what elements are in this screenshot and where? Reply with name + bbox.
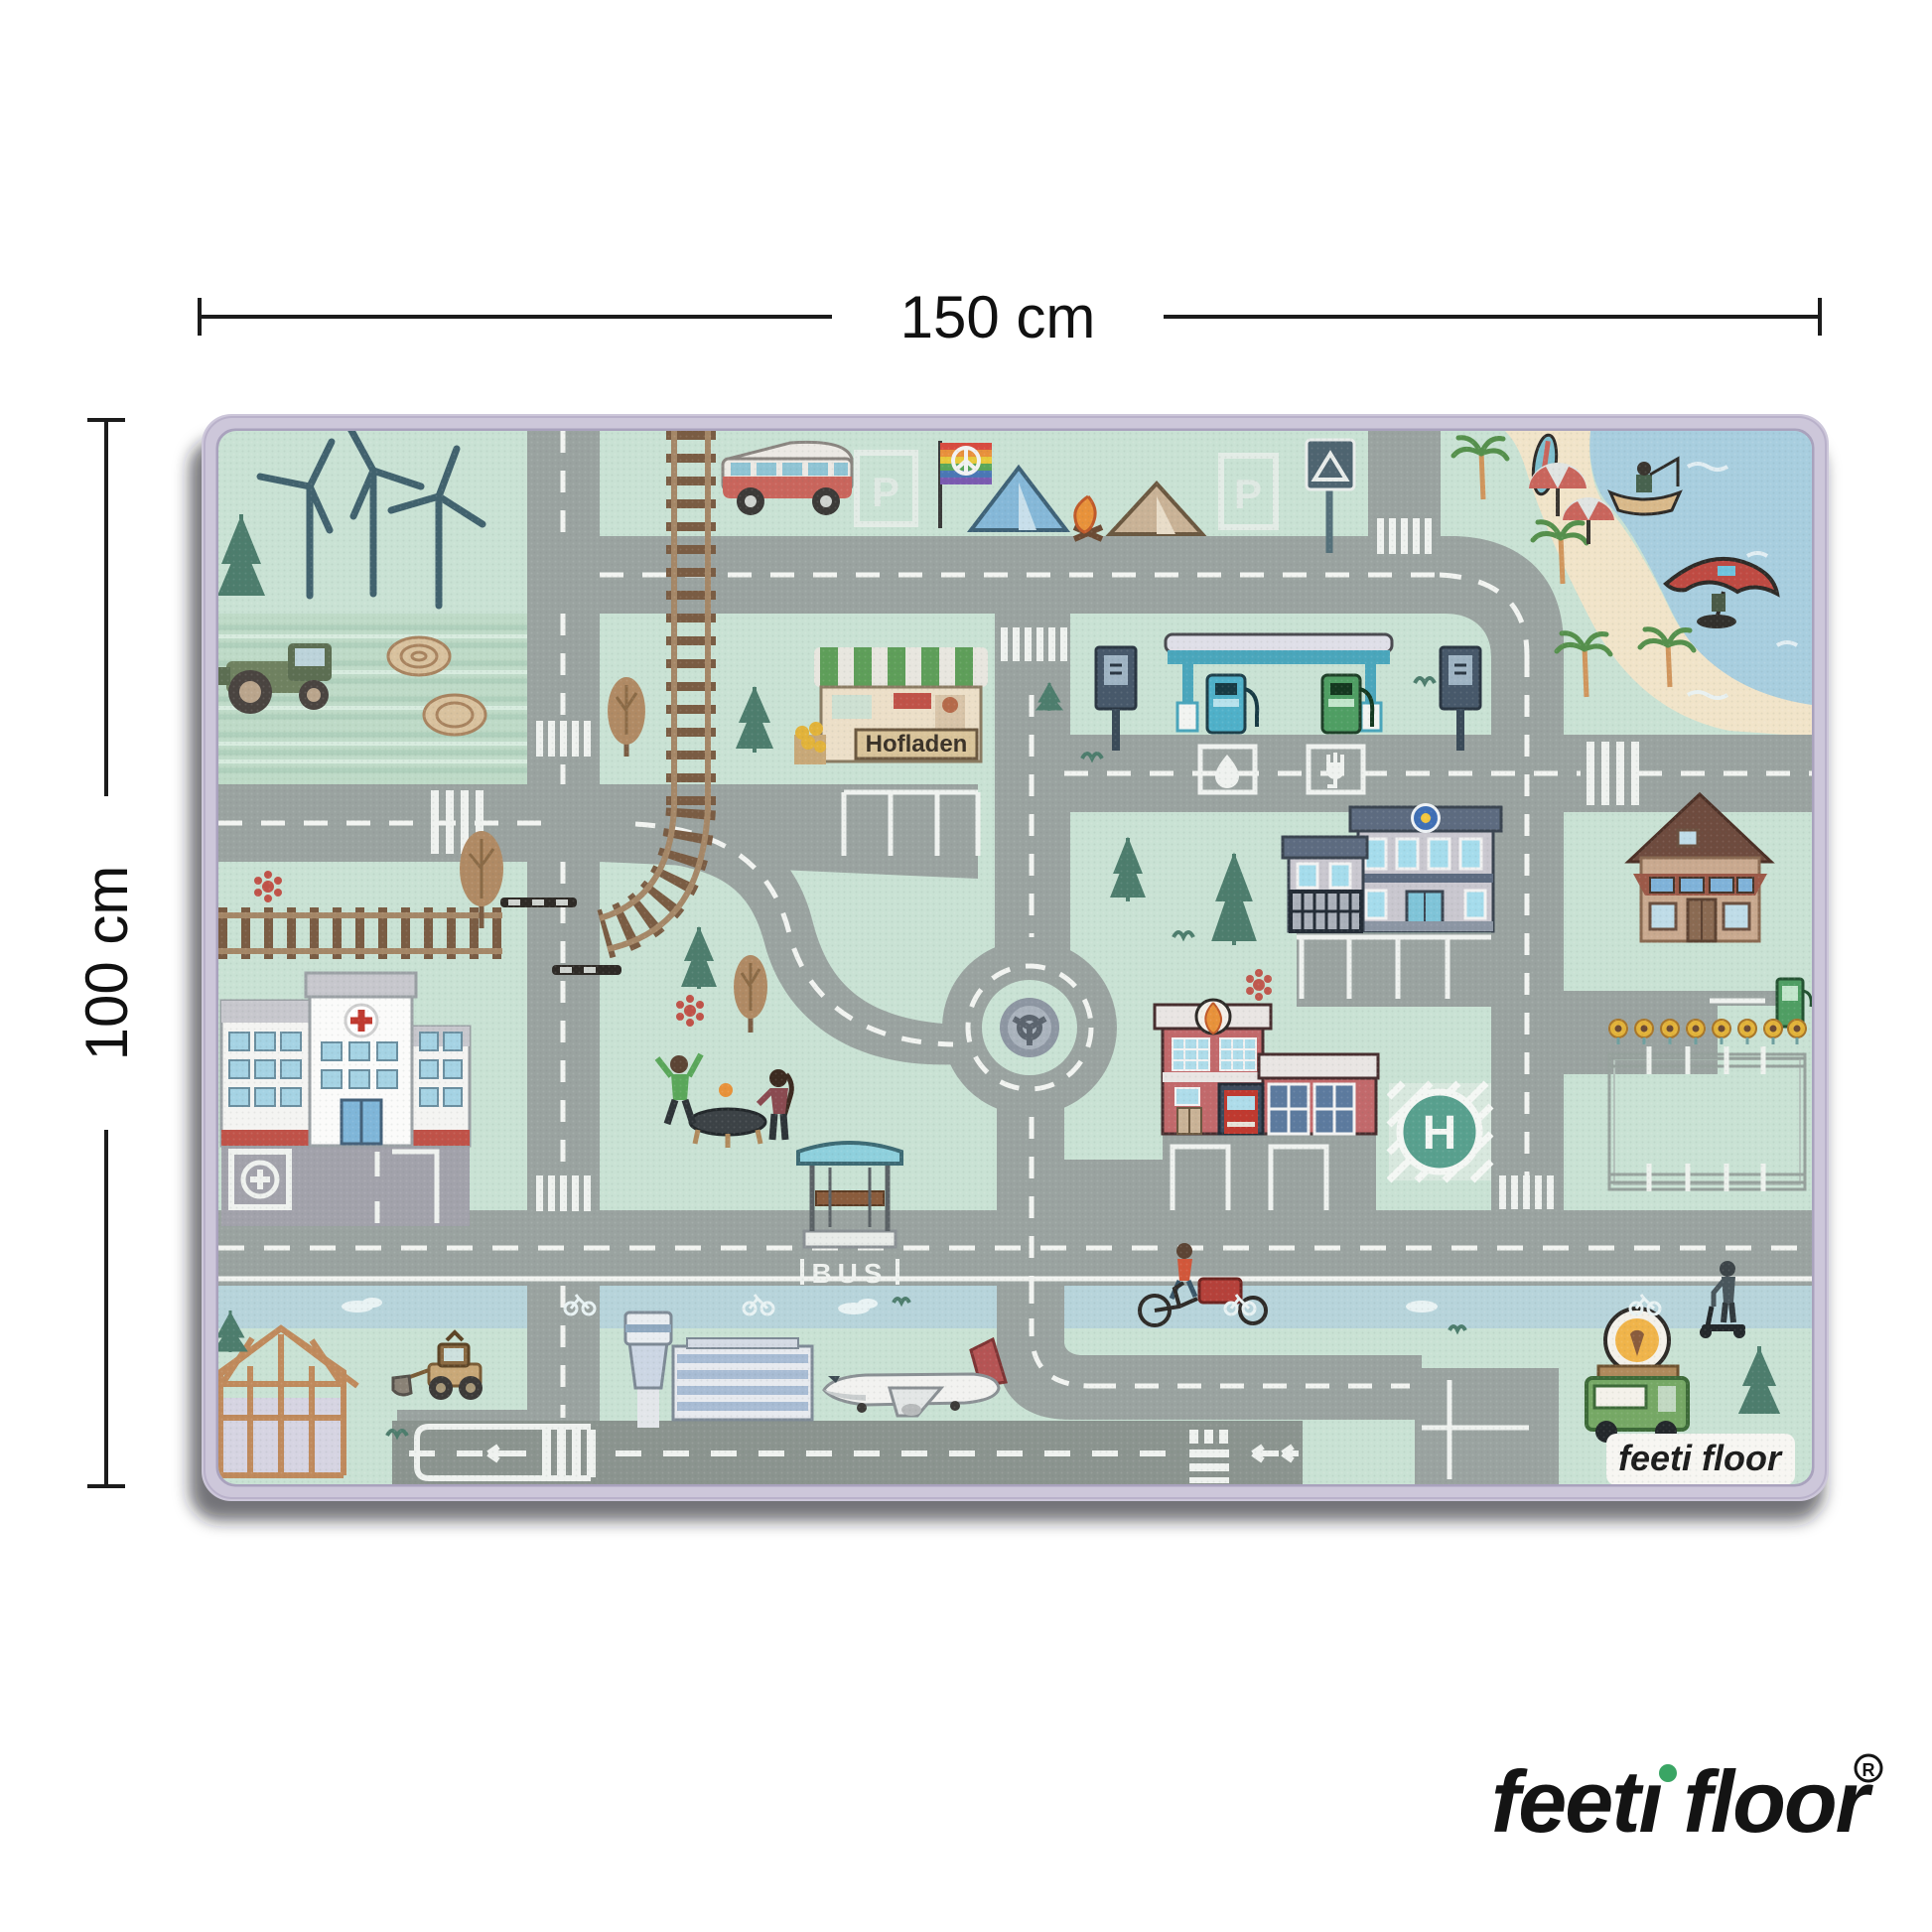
svg-text:R: R	[1863, 1760, 1875, 1780]
svg-text:150 cm: 150 cm	[900, 284, 1096, 350]
svg-text:feetı floor: feetı floor	[1491, 1752, 1874, 1851]
svg-text:100 cm: 100 cm	[73, 866, 140, 1061]
